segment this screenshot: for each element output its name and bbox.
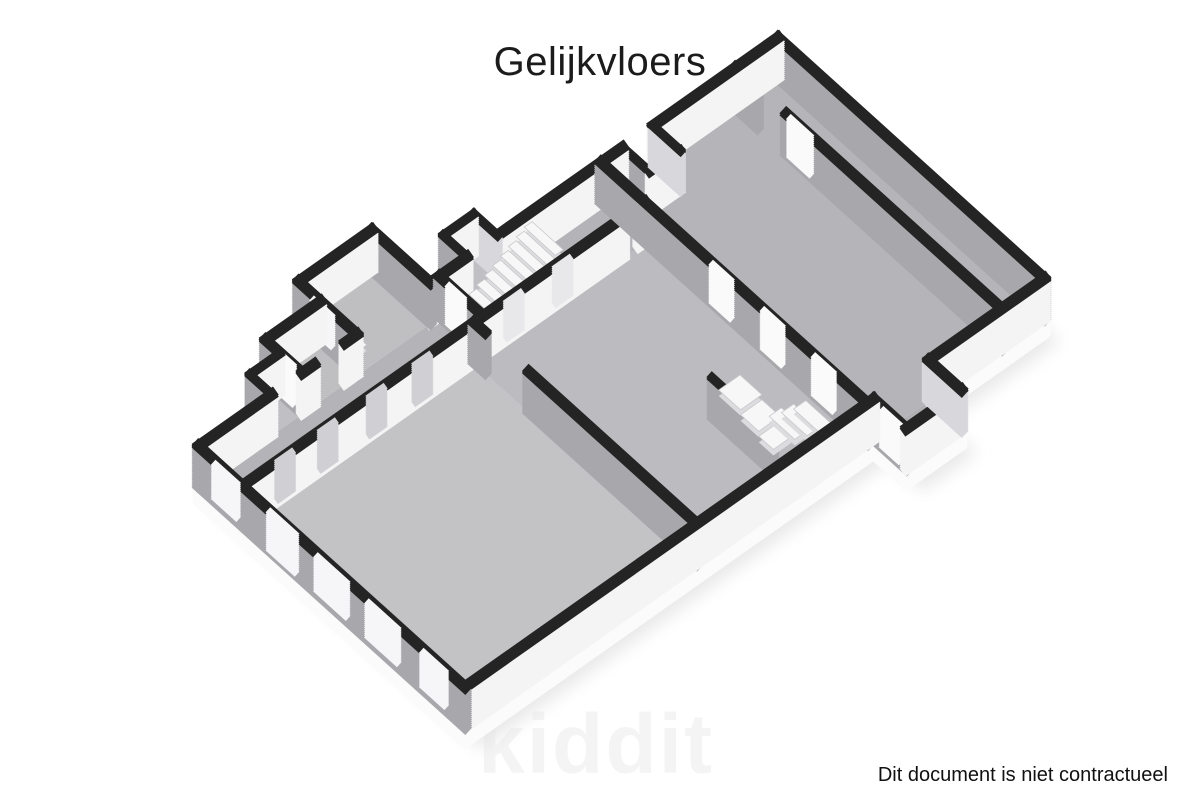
- floorplan-svg: [0, 0, 1200, 801]
- floorplan-3d: [199, 37, 1061, 750]
